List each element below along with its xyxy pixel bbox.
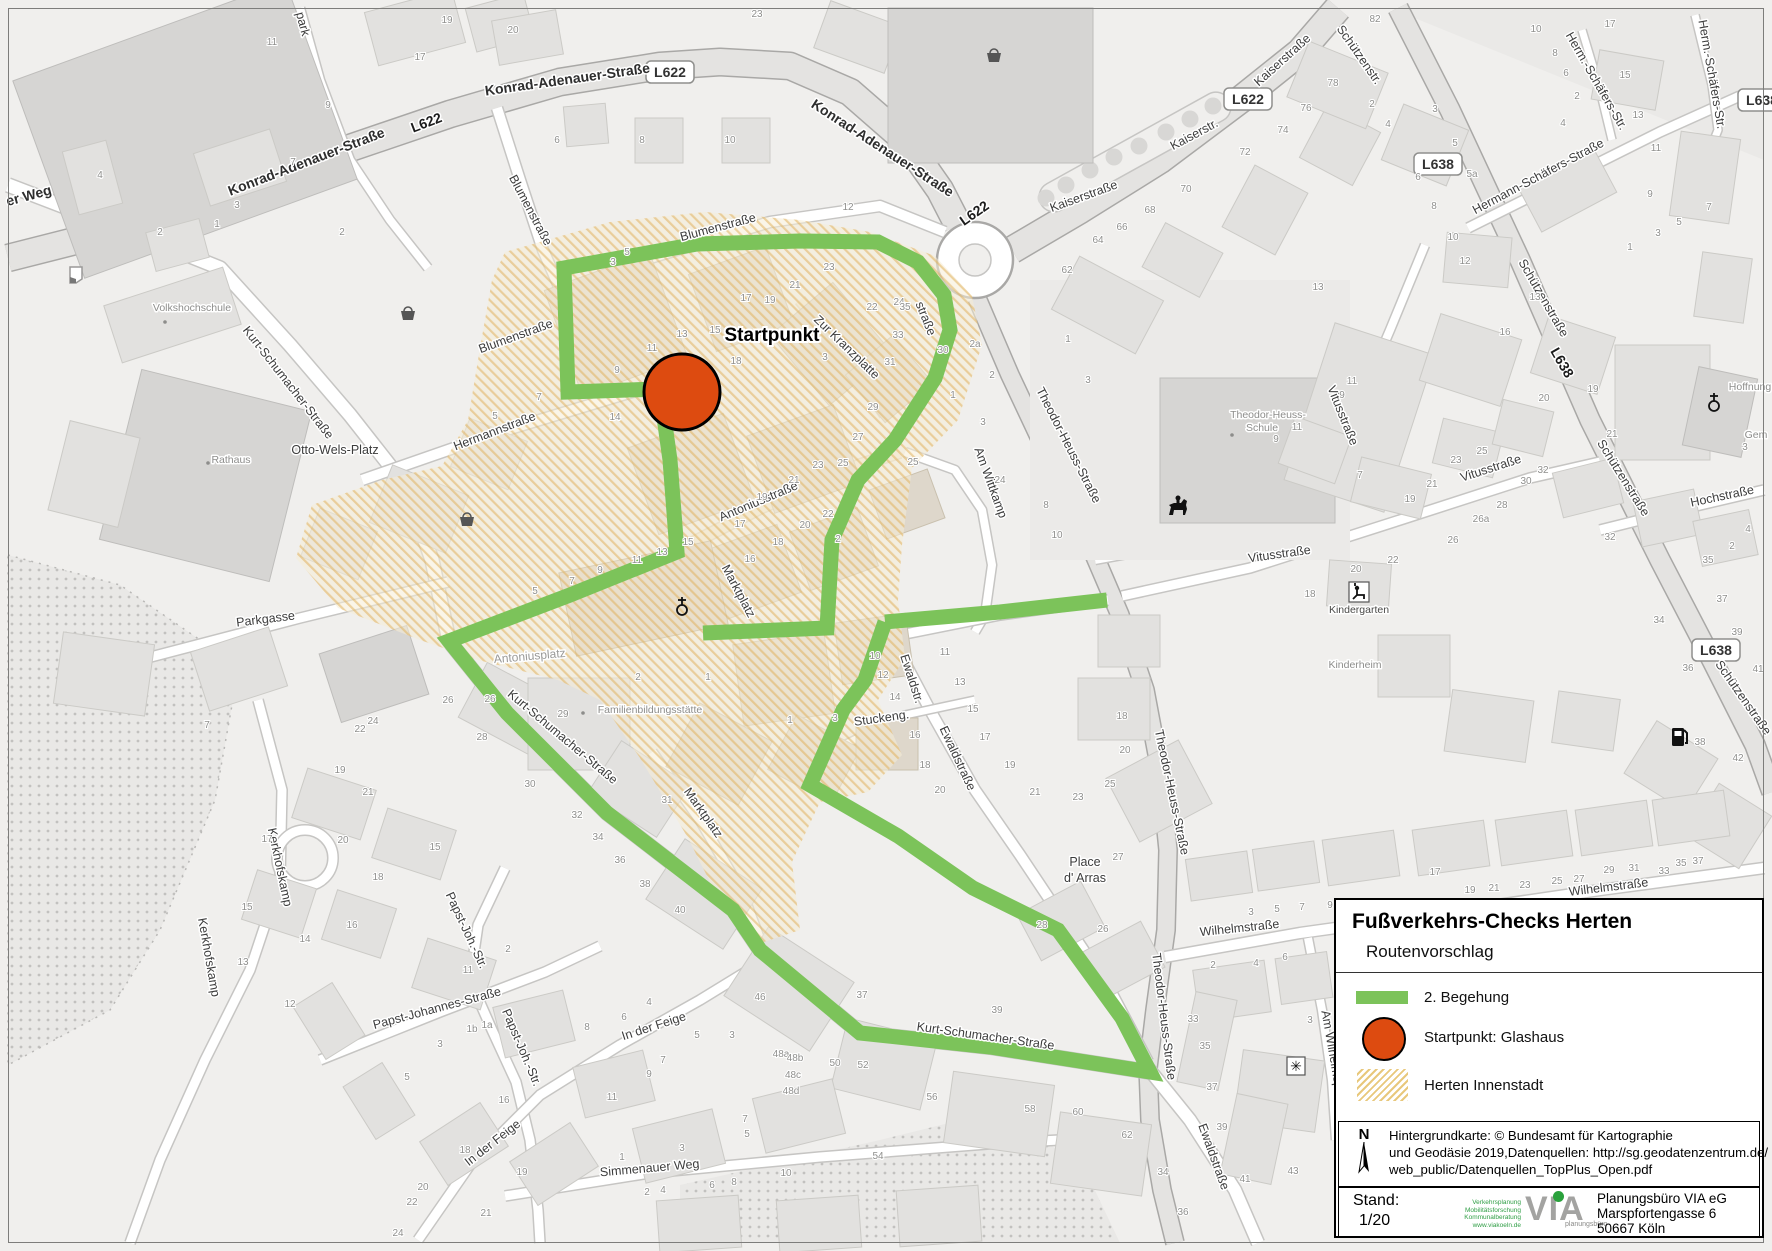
- house-number: 36: [614, 855, 626, 866]
- house-number: 5: [404, 1072, 410, 1083]
- house-number: 48d: [783, 1086, 800, 1097]
- house-number: 1: [619, 1152, 625, 1163]
- startpoint-swatch: [1362, 1017, 1406, 1061]
- building: [1444, 690, 1534, 763]
- house-number: 4: [97, 170, 103, 181]
- house-number: 39: [1216, 1122, 1228, 1133]
- house-number: 6: [1415, 172, 1421, 183]
- house-number: 3: [610, 257, 616, 268]
- house-number: 20: [1538, 393, 1550, 404]
- house-number: 2: [505, 944, 511, 955]
- house-number: 40: [674, 905, 686, 916]
- building: [1669, 131, 1740, 224]
- house-number: 2: [1729, 541, 1735, 552]
- house-number: 54: [872, 1151, 884, 1162]
- house-number: 20: [337, 835, 349, 846]
- house-number: 20: [417, 1182, 429, 1193]
- building: [1495, 810, 1573, 866]
- flag-icon: [70, 267, 82, 283]
- house-number: 20: [1350, 564, 1362, 575]
- house-number: 21: [788, 475, 800, 486]
- house-number: 21: [1488, 883, 1500, 894]
- street-label: Gem: [1745, 429, 1768, 441]
- house-number: 13: [954, 677, 966, 688]
- house-number: 7: [204, 720, 210, 731]
- house-number: 38: [639, 879, 651, 890]
- house-number: 3: [1742, 442, 1748, 453]
- house-number: 14: [299, 934, 311, 945]
- house-number: 17: [979, 732, 991, 743]
- house-number: 16: [498, 1095, 510, 1106]
- house-number: 3: [832, 713, 838, 724]
- house-number: 22: [866, 302, 878, 313]
- building: [1322, 830, 1400, 886]
- house-number: 17: [1429, 867, 1441, 878]
- house-number: 22: [354, 724, 366, 735]
- house-number: 22: [822, 509, 834, 520]
- house-number: 41: [1239, 1174, 1251, 1185]
- house-number: 26: [1447, 535, 1459, 546]
- house-number: 3: [437, 1039, 443, 1050]
- house-number: 20: [934, 785, 946, 796]
- house-number: 11: [1651, 143, 1662, 154]
- house-number: 1: [1627, 242, 1633, 253]
- house-number: 16: [1499, 327, 1511, 338]
- building: [776, 1195, 861, 1251]
- house-number: 8: [1552, 48, 1558, 59]
- house-number: 76: [1300, 103, 1312, 114]
- house-number: 1: [950, 390, 956, 401]
- house-number: 31: [661, 795, 673, 806]
- house-number: 21: [480, 1208, 492, 1219]
- house-number: 35: [899, 302, 911, 313]
- house-number: 48b: [787, 1053, 804, 1064]
- via-logo: Verkehrsplanung Mobilitätsforschung Komm…: [1447, 1190, 1617, 1234]
- house-number: 3: [234, 200, 240, 211]
- house-number: 18: [372, 872, 384, 883]
- house-number: 23: [1072, 792, 1084, 803]
- house-number: 2: [835, 534, 841, 545]
- house-number: 68: [1144, 205, 1156, 216]
- house-number: 7: [1706, 202, 1712, 213]
- house-number: 5: [1676, 217, 1682, 228]
- house-number: 13: [237, 957, 249, 968]
- house-number: 18: [1304, 589, 1316, 600]
- house-number: 27: [852, 432, 864, 443]
- house-number: 23: [812, 460, 824, 471]
- building: [53, 632, 154, 716]
- house-number: 1b: [466, 1024, 478, 1035]
- house-number: 17: [414, 52, 426, 63]
- map-document: ✳L622L622L638L638L638Konrad-Adenauer-Str…: [0, 0, 1772, 1251]
- house-number: 13: [656, 547, 668, 558]
- house-number: 19: [764, 295, 776, 306]
- street-label: Volkshochschule: [153, 302, 231, 314]
- house-number: 37: [1716, 594, 1728, 605]
- house-number: 4: [646, 997, 652, 1008]
- dot-icon: [581, 711, 585, 715]
- house-number: 17: [734, 519, 746, 530]
- house-number: 6: [1563, 68, 1569, 79]
- house-number: 6: [1282, 952, 1288, 963]
- house-number: 21: [362, 787, 374, 798]
- house-number: 3: [980, 417, 986, 428]
- startpunkt-marker: [644, 354, 720, 430]
- house-number: 36: [1682, 663, 1694, 674]
- house-number: 27: [1112, 852, 1124, 863]
- startpunkt-label: Startpunkt: [725, 325, 821, 346]
- house-number: 16: [744, 554, 756, 565]
- route-swatch: [1356, 991, 1408, 1004]
- house-number: 2: [339, 227, 345, 238]
- house-number: 24: [994, 475, 1006, 486]
- legend-item-route: 2. Begehung: [1424, 989, 1509, 1006]
- house-number: 10: [780, 1168, 792, 1179]
- house-number: 34: [1157, 1167, 1169, 1178]
- house-number: 72: [1239, 147, 1251, 158]
- house-number: 2: [1369, 99, 1375, 110]
- house-number: 5: [1452, 138, 1458, 149]
- house-number: 19: [334, 765, 346, 776]
- house-number: 9: [614, 365, 620, 376]
- house-number: 2: [644, 1187, 650, 1198]
- house-number: 30: [937, 345, 949, 356]
- north-arrow-icon: N: [1353, 1128, 1375, 1180]
- house-number: 32: [1604, 532, 1616, 543]
- building: [1252, 841, 1319, 891]
- street-label: d' Arras: [1064, 871, 1106, 885]
- house-number: 39: [1731, 627, 1743, 638]
- house-number: 11: [463, 965, 474, 976]
- stand-label: Stand:: [1353, 1192, 1399, 1210]
- house-number: 19: [1587, 384, 1599, 395]
- house-number: 5: [624, 247, 630, 258]
- house-number: 29: [1603, 865, 1615, 876]
- house-number: 11: [647, 343, 658, 354]
- house-number: 52: [857, 1060, 869, 1071]
- house-number: 9: [1339, 390, 1345, 401]
- building: [1078, 678, 1150, 740]
- svg-text:L638: L638: [1746, 92, 1772, 108]
- house-number: 66: [1116, 222, 1128, 233]
- house-number: 82: [1369, 14, 1381, 25]
- legend-title: Fußverkehrs-Checks Herten: [1336, 900, 1762, 934]
- building: [943, 1071, 1054, 1156]
- house-number: 23: [1450, 455, 1462, 466]
- house-number: 8: [731, 1177, 737, 1188]
- house-number: 34: [1653, 615, 1665, 626]
- building: [1552, 691, 1621, 751]
- building: [1575, 800, 1653, 856]
- house-number: 36: [1177, 1207, 1189, 1218]
- house-number: 21: [789, 280, 801, 291]
- street-label: Theodor-Heuss-: [1230, 409, 1306, 421]
- house-number: 32: [1537, 465, 1549, 476]
- house-number: 29: [867, 402, 879, 413]
- house-number: 5: [532, 586, 538, 597]
- house-number: 9: [325, 100, 331, 111]
- house-number: 46: [754, 992, 766, 1003]
- house-number: 19: [1464, 885, 1476, 896]
- house-number: 4: [1560, 118, 1566, 129]
- house-number: 5: [694, 1030, 700, 1041]
- house-number: 12: [284, 999, 296, 1010]
- tree: [1131, 138, 1148, 155]
- building: [1412, 820, 1490, 876]
- house-number: 19: [1004, 760, 1016, 771]
- house-number: 10: [1530, 24, 1542, 35]
- building: [1652, 790, 1730, 846]
- house-number: 15: [682, 537, 694, 548]
- building: [1378, 635, 1450, 697]
- house-number: 9: [1327, 900, 1333, 911]
- house-number: 8: [1431, 201, 1437, 212]
- house-number: 3: [1307, 1015, 1313, 1026]
- attribution-text: Hintergrundkarte: © Bundesamt für Kartog…: [1389, 1127, 1768, 1178]
- house-number: 62: [1121, 1130, 1133, 1141]
- tree: [1106, 149, 1123, 166]
- house-number: 62: [1061, 265, 1073, 276]
- house-number: 33: [1658, 866, 1670, 877]
- house-number: 78: [1327, 78, 1339, 89]
- house-number: 8: [1043, 500, 1049, 511]
- house-number: 15: [709, 325, 721, 336]
- house-number: 1: [214, 219, 220, 230]
- house-number: 7: [1299, 902, 1305, 913]
- house-number: 3: [1248, 907, 1254, 918]
- house-number: 24: [367, 716, 379, 727]
- street-label: Otto-Wels-Platz: [291, 443, 378, 457]
- house-number: 7: [569, 576, 575, 587]
- house-number: 7: [742, 1114, 748, 1125]
- house-number: 12: [877, 670, 889, 681]
- house-number: 8: [639, 135, 645, 146]
- house-number: 2: [1210, 960, 1216, 971]
- house-number: 25: [907, 457, 919, 468]
- house-number: 43: [1287, 1166, 1299, 1177]
- house-number: 14: [609, 412, 621, 423]
- house-number: 42: [1732, 753, 1744, 764]
- house-number: 9: [597, 565, 603, 576]
- building: [656, 1195, 741, 1251]
- house-number: 11: [267, 37, 278, 48]
- house-number: 26: [1097, 924, 1109, 935]
- house-number: 5: [1274, 904, 1280, 915]
- legend-subtitle: Routenvorschlag: [1336, 934, 1762, 962]
- stand-value: 1/20: [1359, 1212, 1390, 1230]
- house-number: 31: [884, 357, 896, 368]
- street-label: Schule: [1246, 422, 1278, 434]
- building: [1098, 615, 1160, 667]
- house-number: 13: [1529, 292, 1541, 303]
- house-number: 21: [1426, 479, 1438, 490]
- house-number: 9: [1273, 434, 1279, 445]
- house-number: 11: [1347, 376, 1358, 387]
- svg-text:L622: L622: [654, 64, 686, 80]
- house-number: 27: [1573, 874, 1585, 885]
- house-number: 3: [1432, 104, 1438, 115]
- house-number: 21: [1606, 429, 1618, 440]
- house-number: 25: [1104, 779, 1116, 790]
- house-number: 4: [660, 1185, 666, 1196]
- house-number: 48c: [785, 1070, 801, 1081]
- house-number: 16: [346, 920, 358, 931]
- house-number: 19: [1404, 494, 1416, 505]
- house-number: 32: [571, 810, 583, 821]
- tree: [1058, 177, 1075, 194]
- star-icon: ✳: [1287, 1057, 1305, 1075]
- building: [888, 8, 1093, 163]
- legend-item-innenstadt: Herten Innenstadt: [1424, 1077, 1543, 1094]
- house-number: 25: [1551, 876, 1563, 887]
- innenstadt-swatch: [1357, 1069, 1408, 1101]
- house-number: 13: [1632, 110, 1644, 121]
- house-number: 41: [1752, 664, 1764, 675]
- house-number: 28: [476, 732, 488, 743]
- house-number: 19: [441, 15, 453, 26]
- house-number: 3: [1655, 228, 1661, 239]
- svg-text:L638: L638: [1700, 642, 1732, 658]
- house-number: 12: [842, 202, 854, 213]
- dot-icon: [1230, 433, 1234, 437]
- house-number: 2: [989, 370, 995, 381]
- house-number: 58: [1024, 1104, 1036, 1115]
- house-number: 37: [1206, 1082, 1218, 1093]
- house-number: 1: [705, 672, 711, 683]
- house-number: 70: [1180, 184, 1192, 195]
- house-number: 7: [660, 1055, 666, 1066]
- dot-icon: [206, 461, 210, 465]
- house-number: 20: [1119, 745, 1131, 756]
- svg-text:L622: L622: [1232, 91, 1264, 107]
- house-number: 4: [1745, 524, 1751, 535]
- house-number: 1: [1065, 334, 1071, 345]
- house-number: 64: [1092, 235, 1104, 246]
- house-number: 17: [740, 293, 752, 304]
- street-label: Hoffnung: [1729, 381, 1772, 393]
- house-number: 31: [1628, 863, 1640, 874]
- svg-text:L638: L638: [1422, 156, 1454, 172]
- house-number: 6: [554, 135, 560, 146]
- street-label: Place: [1069, 855, 1100, 869]
- tree: [1082, 162, 1099, 179]
- house-number: 12: [1459, 256, 1471, 267]
- house-number: 26: [484, 694, 496, 705]
- house-number: 9: [646, 1069, 652, 1080]
- house-number: 34: [592, 832, 604, 843]
- house-number: 2a: [969, 339, 981, 350]
- house-number: 18: [459, 1145, 471, 1156]
- house-number: 7: [536, 392, 542, 403]
- house-number: 17: [261, 834, 273, 845]
- house-number: 14: [889, 692, 901, 703]
- dot-icon: [163, 320, 167, 324]
- street-label: Rathaus: [211, 454, 250, 466]
- house-number: 17: [1604, 19, 1616, 30]
- house-number: 11: [632, 555, 643, 566]
- stand-box: Stand: 1/20 Verkehrsplanung Mobilitätsfo…: [1338, 1187, 1760, 1238]
- house-number: 4: [1253, 958, 1259, 969]
- street-label: Familienbildungsstätte: [598, 704, 703, 716]
- house-number: 3: [729, 1030, 735, 1041]
- building: [1050, 1112, 1151, 1196]
- house-number: 15: [429, 842, 441, 853]
- street-label: Kindergarten: [1329, 604, 1389, 616]
- house-number: 16: [909, 730, 921, 741]
- house-number: 33: [892, 330, 904, 341]
- house-number: 21: [1029, 787, 1041, 798]
- house-number: 28: [1496, 500, 1508, 511]
- house-number: 13: [1312, 282, 1324, 293]
- house-number: 3: [822, 352, 828, 363]
- house-number: 11: [1292, 422, 1303, 433]
- house-number: 18: [772, 537, 784, 548]
- house-number: 10: [1051, 530, 1063, 541]
- house-number: 18: [730, 356, 742, 367]
- house-number: 5a: [1466, 169, 1478, 180]
- house-number: 2: [157, 227, 163, 238]
- house-number: 39: [991, 1005, 1003, 1016]
- house-number: 7: [290, 157, 296, 168]
- house-number: 50: [829, 1058, 841, 1069]
- house-number: 74: [1277, 125, 1289, 136]
- house-number: 56: [926, 1092, 938, 1103]
- seat-icon: [1349, 582, 1369, 602]
- legend-item-startpoint: Startpunkt: Glashaus: [1424, 1029, 1564, 1046]
- house-number: 35: [1199, 1041, 1211, 1052]
- house-number: 15: [967, 704, 979, 715]
- house-number: 5: [744, 1129, 750, 1140]
- house-number: 11: [607, 1092, 618, 1103]
- house-number: 35: [1702, 555, 1714, 566]
- house-number: 37: [1692, 856, 1704, 867]
- house-number: 10: [724, 135, 736, 146]
- house-number: 18: [919, 760, 931, 771]
- house-number: 19: [516, 1167, 528, 1178]
- svg-text:✳: ✳: [1290, 1058, 1302, 1074]
- building: [1185, 851, 1252, 901]
- house-number: 7: [1357, 470, 1363, 481]
- house-number: 2: [635, 672, 641, 683]
- house-number: 37: [856, 990, 868, 1001]
- house-number: 8: [584, 1022, 590, 1033]
- house-number: 35: [1675, 858, 1687, 869]
- house-number: 29: [557, 709, 569, 720]
- house-number: 1a: [481, 1020, 493, 1031]
- building: [563, 103, 608, 147]
- house-number: 6: [621, 1012, 627, 1023]
- house-number: 30: [1520, 476, 1532, 487]
- house-number: 11: [940, 647, 951, 658]
- building: [896, 1185, 982, 1247]
- house-number: 15: [241, 902, 253, 913]
- house-number: 19: [756, 492, 768, 503]
- house-number: 33: [1187, 1014, 1199, 1025]
- house-number: 22: [1387, 555, 1399, 566]
- house-number: 24: [392, 1228, 404, 1239]
- house-number: 13: [676, 329, 688, 340]
- house-number: 23: [823, 262, 835, 273]
- house-number: 1: [787, 715, 793, 726]
- house-number: 9: [1647, 189, 1653, 200]
- tree: [1205, 98, 1222, 115]
- attribution-box: N Hintergrundkarte: © Bundesamt für Kart…: [1338, 1121, 1760, 1187]
- house-number: 20: [507, 25, 519, 36]
- house-number: 23: [751, 9, 763, 20]
- house-number: 10: [869, 651, 881, 662]
- house-number: 3: [1085, 375, 1091, 386]
- house-number: 22: [406, 1197, 418, 1208]
